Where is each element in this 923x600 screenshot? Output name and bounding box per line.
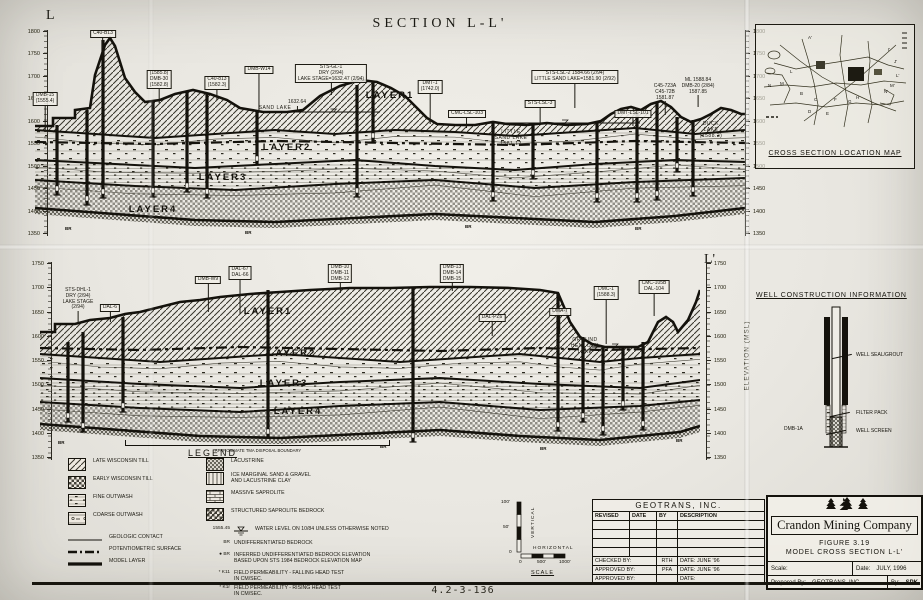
sheet-bottom-rule — [32, 582, 920, 585]
line-thick-swatch-icon — [68, 558, 102, 569]
location-map-panel: A'I'J'L'M'N'LMNBCDEFGH CROSS SECTION LOC… — [755, 24, 915, 169]
layer-label: LAYER3 — [260, 378, 309, 389]
well-annotation: (1585.8)DMB-30(1582.8) — [147, 70, 172, 103]
coarse-swatch-icon — [68, 512, 86, 525]
bedrock-label: BR — [245, 230, 252, 235]
well-annotation: DAL-6 — [100, 304, 120, 322]
map-section-letter: C — [814, 97, 817, 102]
sign-label: CHECKED BY: — [593, 557, 657, 566]
scale-tick: 0 — [509, 550, 512, 555]
elevation-axis-title: ELEVATION (MSL) — [744, 320, 751, 390]
map-section-letter: N' — [884, 89, 888, 94]
figure-caption: FIGURE 3.19 MODEL CROSS SECTION L-L' — [768, 535, 921, 562]
figure-title: MODEL CROSS SECTION L-L' — [768, 549, 921, 558]
elevation-tick: 1350 — [753, 231, 765, 237]
layer-label: LAYER2 — [263, 142, 312, 153]
fine-swatch-icon — [68, 494, 86, 507]
revisions-column-header: BY — [657, 512, 678, 521]
well-part-label: WELL SCREEN — [856, 428, 892, 434]
well-name: DMB-1A — [784, 426, 803, 432]
legend-item: POTENTIOMETRIC SURFACE — [68, 546, 181, 557]
section-start-label: L — [46, 8, 55, 24]
legend-item: COARSE OUTWASH — [68, 512, 143, 525]
cross-section-top-labels: DMB-15(1555.4)C40-B13(1585.8)DMB-30(1582… — [35, 30, 745, 235]
map-section-letter: E — [826, 111, 829, 116]
elevation-tick: 1750 — [714, 261, 726, 267]
leader-line — [826, 430, 846, 435]
scale-block: 100'50'0VERTICALHORIZONTAL0500'1000'SCAL… — [487, 494, 579, 586]
drawing-sheet: { "title": "SECTION L-L'", "doc_number":… — [0, 0, 923, 600]
well-part-label: WELL SEAL/GROUT — [856, 352, 903, 358]
legend-item: ICE MARGINAL SAND & GRAVELAND LACUSTRINE… — [206, 472, 311, 485]
legend-label: GEOLOGIC CONTACT — [109, 534, 163, 540]
revisions-column-header: DESCRIPTION — [678, 512, 765, 521]
bedrock-label: BR — [65, 226, 72, 231]
figure-number: FIGURE 3.19 — [768, 540, 921, 549]
well-annotation: C40-813(1582.3) — [204, 76, 229, 100]
legend-symbol-text: * K1r — [206, 585, 230, 591]
legend-label: STRUCTURED SAPROLITE BEDROCK — [231, 508, 324, 514]
feature-label: LITTLESAND LAKE1581.12 — [495, 130, 528, 147]
vertical-scale-label: VERTICAL — [531, 507, 536, 538]
revisions-empty-cell — [657, 530, 678, 539]
legend-item: LACUSTRINE — [206, 458, 264, 471]
well-annotation: CMC-LSL-103 — [448, 110, 486, 128]
legend-label: MODEL LAYER — [109, 558, 145, 564]
legend-label: FIELD PERMEABILITY - FALLING HEAD TESTIN… — [234, 570, 344, 582]
map-section-letter: M' — [890, 83, 895, 88]
line-thin-swatch-icon — [68, 534, 102, 545]
lacustrine-swatch-icon — [206, 458, 224, 471]
revisions-empty-cell — [678, 548, 765, 557]
map-section-letter: I' — [888, 47, 890, 52]
bedrock-label: BR — [635, 226, 642, 231]
location-map-letters: A'I'J'L'M'N'LMNBCDEFGH — [756, 25, 912, 143]
line-dashdot-swatch-icon — [68, 546, 102, 557]
struct-swatch-icon — [206, 508, 224, 521]
bedrock-label: BR — [540, 446, 547, 451]
map-section-letter: N — [768, 83, 771, 88]
elevation-tick: 1600 — [714, 334, 726, 340]
well-annotation: DMB-W9 — [195, 276, 221, 312]
well-construction-labels: WELL SEAL/GROUTFILTER PACKWELL SCREENDMB… — [756, 306, 920, 466]
date-value: JULY, 1996 — [873, 566, 909, 572]
elevation-tick: 1500 — [714, 382, 726, 388]
leader-line — [830, 412, 850, 417]
revisions-table: GEOTRANS, INC.REVISEDDATEBYDESCRIPTIONCH… — [592, 499, 765, 584]
map-section-letter: J' — [894, 59, 897, 64]
legend-symbol-text: * K11 — [206, 570, 230, 576]
revisions-empty-cell — [657, 521, 678, 530]
legend-label: MASSIVE SAPROLITE — [231, 490, 285, 496]
legend-symbol-text: BR — [206, 540, 230, 546]
legend-item: EARLY WISCONSIN TILL — [68, 476, 153, 489]
scale-tick: 100' — [501, 500, 510, 505]
well-annotation: STS-DHL-1DRY (2/94)LAKE STAGE(2/94) — [63, 288, 94, 323]
feature-label: DUCKLAKE(1588.2) — [700, 122, 723, 139]
well-annotation: DMC-1(1588.3) — [594, 286, 619, 344]
legend-label: WATER LEVEL ON 10/84 UNLESS OTHERWISE NO… — [255, 526, 389, 532]
bedrock-label: BR — [465, 224, 472, 229]
scale-date-row: Scale: Date: JULY, 1996 — [768, 562, 921, 576]
map-section-letter: G — [848, 99, 852, 104]
revisions-empty-cell — [657, 539, 678, 548]
elevation-tick: 1450 — [714, 407, 726, 413]
revisions-empty-cell — [593, 530, 630, 539]
elevation-axis-bottom-right: 175017001650160015501500145014001350 — [706, 262, 740, 460]
revisions-column-header: DATE — [630, 512, 657, 521]
scale-tick: 50' — [503, 525, 509, 530]
legend-item: LATE WISCONSIN TILL — [68, 458, 149, 471]
well-annotation: STS-GL-1DRY (2/94)LAKE STAGE=1632.47 (2/… — [295, 64, 367, 95]
document-number: 4.2-3-136 — [398, 585, 528, 596]
elevation-tick: 1550 — [714, 358, 726, 364]
feature-label: SAND LAKE — [259, 106, 292, 112]
trees-logo — [768, 497, 917, 510]
well-annotation: DAL-PZ6 — [479, 314, 506, 336]
check-swatch-icon — [68, 476, 86, 489]
legend-label: LATE WISCONSIN TILL — [93, 458, 149, 464]
horizontal-scale-label: HORIZONTAL — [533, 546, 574, 551]
map-section-letter: F — [834, 97, 837, 102]
revisions-empty-cell — [630, 521, 657, 530]
legend-label: FINE OUTWASH — [93, 494, 133, 500]
water-level-icon — [234, 526, 248, 537]
well-annotation: C45-723AC45-72B1581.87 — [654, 84, 677, 115]
layer-label: LAYER2 — [268, 348, 317, 359]
well-annotation: DMB-15(1555.4) — [33, 92, 58, 132]
sign-label: APPROVED BY: — [593, 566, 657, 575]
layer-label: LAYER4 — [274, 406, 323, 417]
sign-initials: PFA — [657, 566, 678, 575]
well-part-label: FILTER PACK — [856, 410, 888, 416]
scale-title: SCALE — [531, 570, 554, 576]
revisions-empty-cell — [678, 530, 765, 539]
well-construction-title: WELL CONSTRUCTION INFORMATION — [756, 292, 920, 299]
title-block: Crandon Mining Company FIGURE 3.19 MODEL… — [766, 495, 923, 590]
revisions-empty-cell — [678, 539, 765, 548]
layer-label: LAYER1 — [366, 90, 415, 101]
revisions-empty-cell — [593, 521, 630, 530]
elevation-tick: 1450 — [753, 186, 765, 192]
revisions-empty-cell — [630, 548, 657, 557]
scale-tick: 500' — [537, 560, 546, 565]
revisions-empty-cell — [630, 530, 657, 539]
location-map-title: CROSS SECTION LOCATION MAP — [756, 150, 914, 157]
revisions-empty-cell — [678, 521, 765, 530]
well-annotation: DMT-LSL-101 — [614, 110, 651, 126]
layer-label: LAYER3 — [199, 172, 248, 183]
legend-label: UNDIFFERENTIATED BEDROCK — [234, 540, 313, 546]
sign-date: DATE: JUNE '96 — [678, 557, 765, 566]
legend-title: LEGEND — [188, 448, 237, 458]
legend-label: POTENTIOMETRIC SURFACE — [109, 546, 181, 552]
legend-label: ICE MARGINAL SAND & GRAVELAND LACUSTRINE… — [231, 472, 311, 484]
elevation-tick: 1400 — [753, 209, 765, 215]
map-section-letter: L — [790, 69, 793, 74]
legend-item: MODEL LAYER — [68, 558, 145, 569]
well-annotation: DAL-67DAL-66 — [229, 266, 252, 314]
revisions-empty-cell — [593, 548, 630, 557]
legend-item: ● BRINFERRED UNDIFFERENTIATED BEDROCK EL… — [206, 552, 370, 564]
scale-tick: 0 — [519, 560, 522, 565]
well-annotation: DMT-1(1742.0) — [418, 80, 443, 124]
revisions-empty-cell — [657, 548, 678, 557]
legend-item: STRUCTURED SAPROLITE BEDROCK — [206, 508, 324, 521]
hatch-swatch-icon — [68, 458, 86, 471]
legend-label: EARLY WISCONSIN TILL — [93, 476, 153, 482]
sign-initials: RTH — [657, 557, 678, 566]
scale-tick: 1000' — [559, 560, 571, 565]
date-label: Date: — [853, 566, 873, 572]
legend-item: * K11FIELD PERMEABILITY - FALLING HEAD T… — [206, 570, 344, 582]
elevation-tick: 1400 — [714, 431, 726, 437]
feature-label: GROUNDHEMLOCKLAKE — [571, 338, 599, 355]
legend-label: COARSE OUTWASH — [93, 512, 143, 518]
map-section-letter: D — [808, 109, 811, 114]
well-annotation: DMB-10DMB-11DMB-12 — [328, 264, 352, 293]
scale-label: Scale: — [768, 566, 852, 572]
layer-label: LAYER4 — [129, 204, 178, 215]
legend-symbol-text: ● BR — [206, 552, 230, 558]
map-section-letter: A' — [808, 35, 812, 40]
tma-boundary-bracket — [125, 440, 390, 446]
well-annotation: ML 1588.84DMB-20 (2/84)1587.85 — [682, 78, 715, 107]
elevation-tick: 1650 — [714, 310, 726, 316]
bedrock-label: BR — [58, 440, 65, 445]
sign-date: DATE: JUNE '96 — [678, 566, 765, 575]
elevation-tick: 1700 — [714, 285, 726, 291]
icemarg-swatch-icon — [206, 472, 224, 485]
map-section-letter: L' — [896, 73, 899, 78]
well-annotation: STS-LSL-3 — [525, 100, 556, 124]
revisions-column-header: REVISED — [593, 512, 630, 521]
company-name: Crandon Mining Company — [771, 516, 918, 535]
legend-item: GEOLOGIC CONTACT — [68, 534, 163, 545]
map-section-letter: H — [856, 95, 859, 100]
legend-item: MASSIVE SAPROLITE — [206, 490, 285, 503]
well-annotation: DMA-7 — [549, 308, 571, 334]
legend-item: * K1rFIELD PERMEABILITY - RISING HEAD TE… — [206, 585, 341, 597]
map-section-letter: M — [780, 81, 784, 86]
leader-line — [832, 354, 852, 359]
well-construction-panel: WELL CONSTRUCTION INFORMATION WELL SEAL/… — [756, 292, 920, 470]
revisions-empty-cell — [593, 539, 630, 548]
massive-swatch-icon — [206, 490, 224, 503]
well-annotation: CMC-105BDAL-104 — [639, 280, 670, 316]
revisions-empty-cell — [630, 539, 657, 548]
legend: LEGEND LATE WISCONSIN TILLEARLY WISCONSI… — [58, 446, 393, 582]
well-annotation: C40-B13 — [90, 30, 116, 48]
legend-item: 1555.45WATER LEVEL ON 10/84 UNLESS OTHER… — [206, 526, 389, 537]
legend-label: INFERRED UNDIFFERENTIATED BEDROCK ELEVAT… — [234, 552, 370, 564]
paper-fold-horizontal — [0, 244, 923, 250]
cross-section-bottom-labels: STS-DHL-1DRY (2/94)LAKE STAGE(2/94)DAL-6… — [40, 262, 700, 462]
legend-symbol-text: 1555.45 — [206, 526, 230, 532]
legend-label: LACUSTRINE — [231, 458, 264, 464]
legend-label: FIELD PERMEABILITY - RISING HEAD TESTIN … — [234, 585, 341, 597]
well-annotation: DMB-13DMB-14DMB-15 — [440, 264, 464, 291]
bedrock-label: BR — [676, 438, 683, 443]
map-section-letter: B — [800, 91, 803, 96]
firm-name: GEOTRANS, INC. — [593, 500, 765, 512]
legend-item: FINE OUTWASH — [68, 494, 133, 507]
elevation-tick: 1350 — [714, 455, 726, 461]
legend-item: BRUNDIFFERENTIATED BEDROCK — [206, 540, 313, 546]
